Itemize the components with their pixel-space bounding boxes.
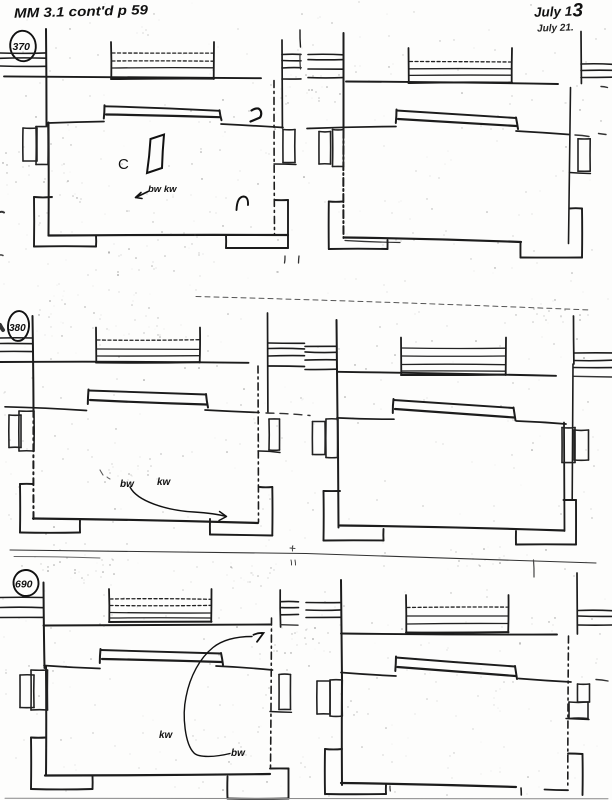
svg-text:3: 3 bbox=[572, 0, 584, 21]
svg-text:bw kw: bw kw bbox=[148, 184, 177, 195]
svg-text:July 1: July 1 bbox=[534, 4, 573, 20]
svg-text:kw: kw bbox=[159, 730, 174, 741]
svg-text:380: 380 bbox=[9, 323, 26, 334]
svg-text:690: 690 bbox=[15, 579, 33, 591]
svg-text:370: 370 bbox=[13, 41, 31, 53]
svg-text:kw: kw bbox=[157, 477, 172, 488]
svg-text:bw: bw bbox=[120, 479, 135, 490]
svg-text:C: C bbox=[118, 156, 129, 173]
svg-text:MM 3.1 cont'd p 59: MM 3.1 cont'd p 59 bbox=[14, 2, 149, 21]
svg-text:July 21.: July 21. bbox=[537, 22, 574, 34]
